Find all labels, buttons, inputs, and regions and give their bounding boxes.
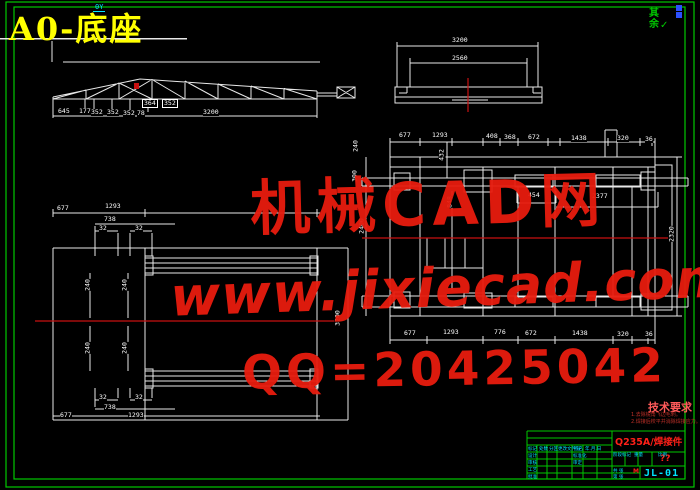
title-block-label: 审核 [528, 461, 537, 466]
title-block-label: 第 张 [613, 475, 623, 480]
watermark-qq: QQ=20425042 [242, 338, 668, 400]
dim-label: 240 [353, 140, 360, 152]
title-block-label: 年.月.日 [585, 447, 601, 452]
title-block-label: 标准化 [573, 454, 587, 459]
dim-label: 677 [404, 330, 416, 337]
dim-label: 240 [122, 342, 129, 354]
dim-label: 645 [58, 108, 70, 115]
dim-label: 3200 [203, 109, 219, 116]
title-block-label: 处数 [539, 447, 548, 452]
dim-label: 2560 [452, 55, 468, 62]
dim-label: 672 [525, 330, 537, 337]
mass-mark: M [633, 468, 639, 475]
title-block-label: 共 张 [613, 469, 623, 474]
dim-label: 1293 [443, 329, 459, 336]
dim-label: 1438 [571, 135, 587, 142]
material-spec: Q235A/焊接件 [615, 434, 682, 448]
dim-label: 738 [104, 216, 116, 223]
dim-label: 368 [504, 134, 516, 141]
title-block-label: 阶段标记 [613, 453, 631, 458]
tech-note-line: 1.去除锐角飞边毛刺。 [631, 412, 681, 418]
dim-label: 2320 [669, 226, 676, 242]
title-block-label: 分区 [549, 447, 558, 452]
corner-glyph-icon [676, 4, 682, 19]
dim-label: 240 [122, 279, 129, 291]
dim-label: 672 [528, 134, 540, 141]
dim-label: 32 [135, 225, 143, 232]
dim-label: 32 [99, 225, 107, 232]
dim-label: 1293 [105, 203, 121, 210]
title-block-label: 审定 [573, 461, 582, 466]
cad-drawing-sheet: A0-底座 0Y 其余 ✓ 64517735235235278364352320… [0, 0, 700, 490]
dim-label: 36 [645, 136, 653, 143]
dim-label: 240 [85, 342, 92, 354]
dim-label: 32 [135, 394, 143, 401]
dim-label: 352 [123, 110, 135, 117]
watermark-brand: 机械CAD网 [249, 151, 607, 247]
weld-mark [134, 83, 139, 89]
dim-label: 1293 [128, 412, 144, 419]
dim-label: 320 [617, 135, 629, 142]
dim-label: 1438 [572, 330, 588, 337]
dim-label: 352 [107, 109, 119, 116]
roughness-check-icon: ✓ [660, 20, 668, 31]
dim-label: 677 [57, 205, 69, 212]
title-block-label: 标记 [528, 447, 537, 452]
dim-label: 738 [104, 404, 116, 411]
title-block-label: 重量 [634, 453, 643, 458]
dim-label: 364 [142, 99, 158, 108]
title-block-label: 工艺 [528, 468, 537, 473]
dim-label: 36 [645, 331, 653, 338]
title-block-label: 批准 [528, 475, 537, 480]
tech-note-line: 2.焊接后校平并消除焊接应力。 [631, 419, 700, 425]
dim-label: 177 [79, 108, 91, 115]
dim-label: 677 [399, 132, 411, 139]
title-block-label: 签名 [574, 447, 583, 452]
dim-label: 1293 [432, 132, 448, 139]
sheet-title: A0-底座 [9, 4, 143, 50]
dim-label: 677 [60, 412, 72, 419]
title-block-label: 比例 [658, 453, 667, 458]
dim-label: 408 [486, 133, 498, 140]
dim-label: 352 [162, 99, 178, 108]
dim-label: 352 [91, 109, 103, 116]
dim-label: 320 [617, 331, 629, 338]
dim-label: 240 [85, 279, 92, 291]
title-block-label: 设计 [528, 454, 537, 459]
dim-label: 78 [137, 110, 145, 117]
dim-label: 3200 [452, 37, 468, 44]
ucs-axis-icon: 0Y [93, 3, 105, 12]
dim-label: 32 [99, 394, 107, 401]
dim-label: 776 [494, 329, 506, 336]
drawing-number: JL-01 [644, 468, 679, 479]
